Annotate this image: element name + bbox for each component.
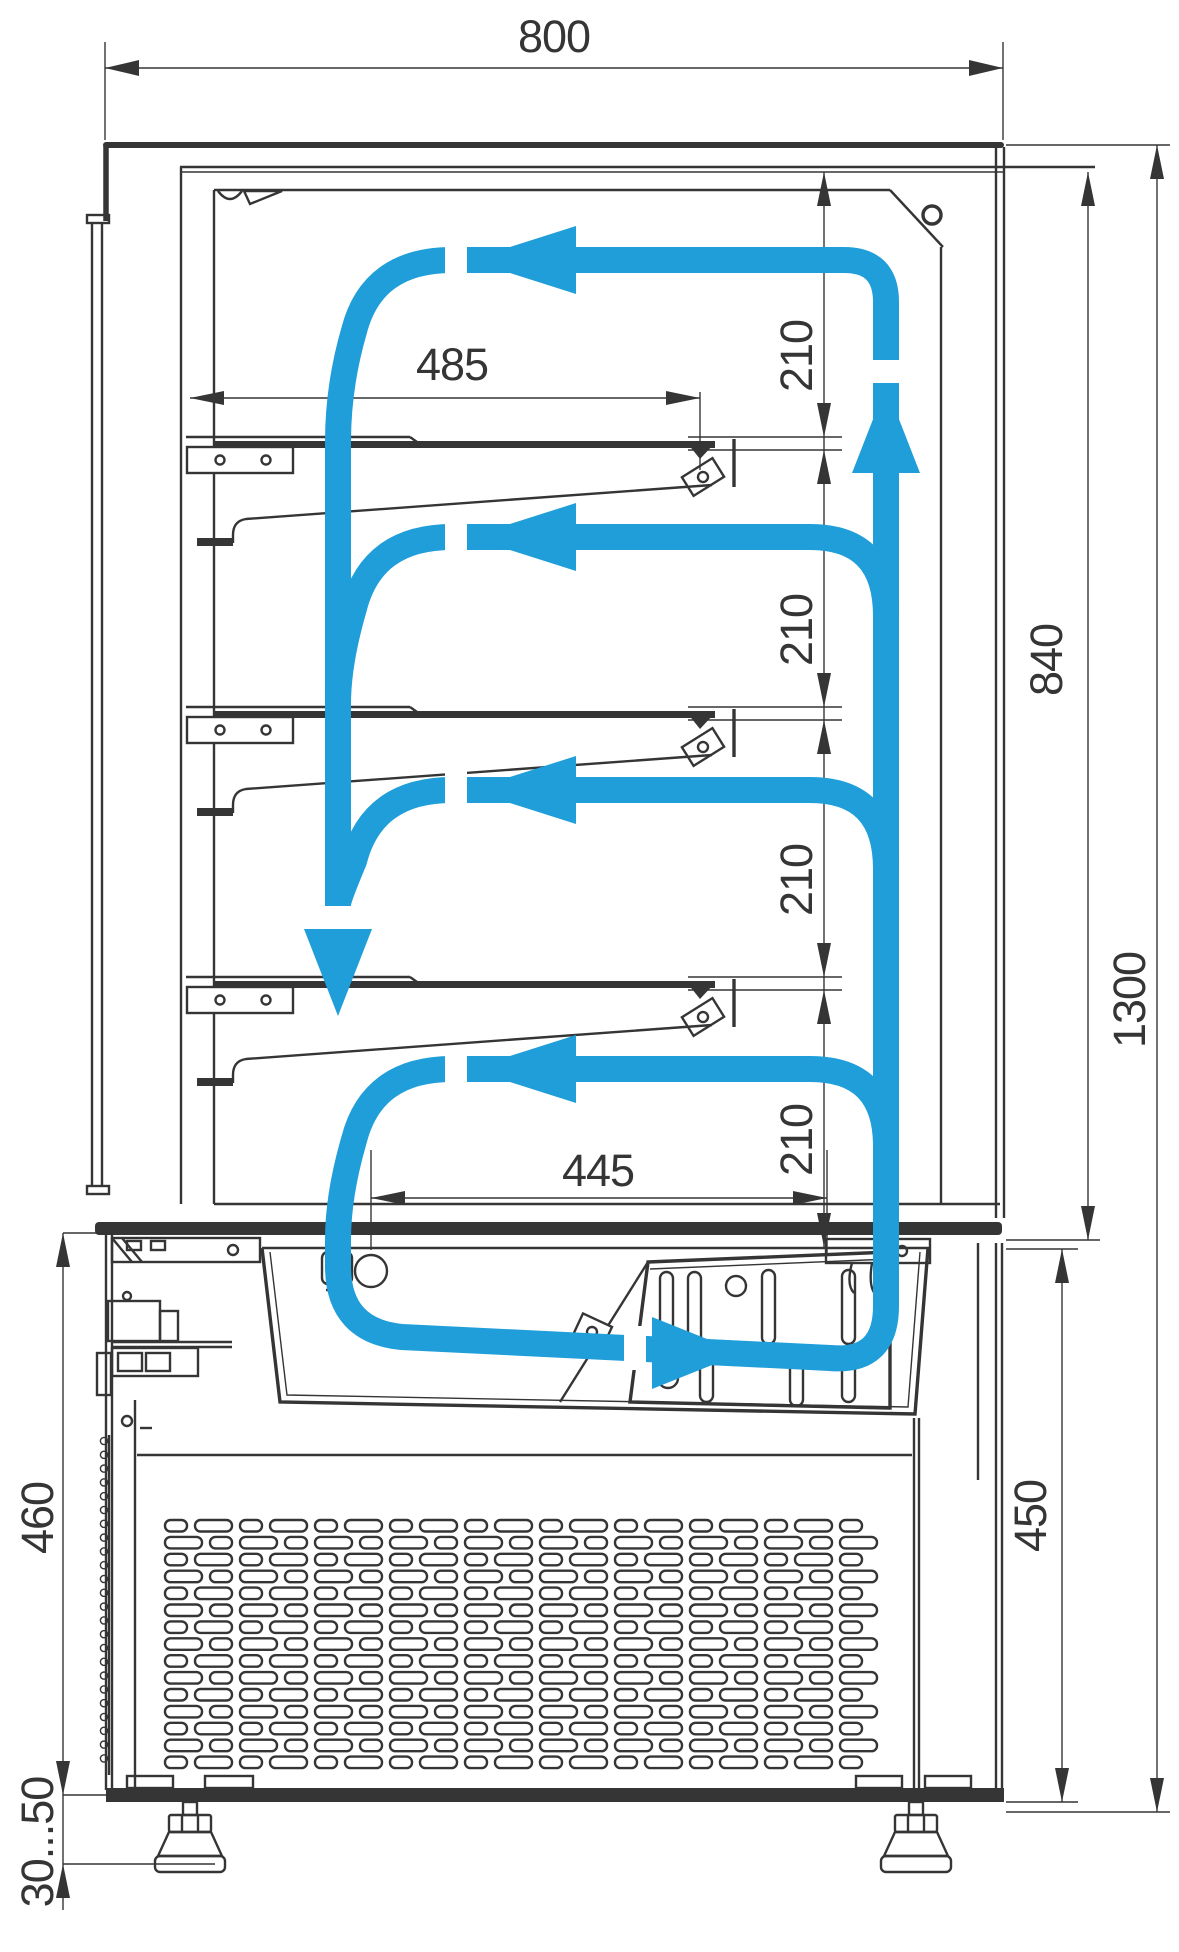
grille-slot — [540, 1740, 577, 1752]
grille-slot — [420, 1588, 457, 1600]
grille-slot — [210, 1638, 232, 1650]
grille-slot — [660, 1740, 682, 1752]
grille-slot — [720, 1655, 757, 1667]
grille-slot — [240, 1571, 277, 1583]
grille-slot — [810, 1740, 832, 1752]
grille-slot — [540, 1605, 577, 1617]
grille-slot — [420, 1621, 457, 1633]
grille-slot — [420, 1520, 457, 1532]
grille-slot — [465, 1537, 502, 1549]
grille-slot — [495, 1621, 532, 1633]
grille-slot — [360, 1571, 382, 1583]
grille-slot — [615, 1655, 637, 1667]
grille-slot — [540, 1689, 562, 1701]
grille-slot — [345, 1588, 382, 1600]
vent-grille — [165, 1520, 877, 1768]
grille-slot — [510, 1605, 532, 1617]
grille-slot — [690, 1554, 712, 1566]
grille-slot — [390, 1605, 427, 1617]
grille-slot — [390, 1520, 412, 1532]
grille-slot — [285, 1537, 307, 1549]
counter-top — [95, 1222, 1002, 1248]
grille-slot — [795, 1655, 832, 1667]
grille-slot — [840, 1605, 877, 1617]
grille-slot — [465, 1672, 502, 1684]
grille-slot — [840, 1672, 877, 1684]
grille-slot — [795, 1554, 832, 1566]
grille-slot — [465, 1638, 502, 1650]
grille-slot — [540, 1655, 562, 1667]
grille-slot — [690, 1571, 727, 1583]
grille-slot — [765, 1588, 787, 1600]
grille-slot — [510, 1706, 532, 1718]
grille-slot — [345, 1689, 382, 1701]
grille-slot — [165, 1605, 202, 1617]
grille-slot — [270, 1655, 307, 1667]
grille-slot — [720, 1520, 757, 1532]
grille-slot — [810, 1571, 832, 1583]
grille-slot — [690, 1672, 727, 1684]
grille-slot — [210, 1740, 232, 1752]
grille-slot — [165, 1655, 187, 1667]
grille-slot — [840, 1757, 862, 1769]
grille-slot — [765, 1757, 787, 1769]
label-210-4: 210 — [771, 1104, 822, 1176]
grille-slot — [810, 1605, 832, 1617]
label-210-3: 210 — [771, 844, 822, 916]
grille-slot — [195, 1689, 232, 1701]
grille-slot — [435, 1537, 457, 1549]
grille-slot — [390, 1537, 427, 1549]
grille-slot — [615, 1740, 652, 1752]
grille-slot — [510, 1571, 532, 1583]
grille-slot — [795, 1621, 832, 1633]
grille-slot — [270, 1723, 307, 1735]
display-case-diagram: 800 485 445 210 210 210 210 840 1300 450… — [0, 0, 1179, 1952]
grille-slot — [840, 1740, 877, 1752]
grille-slot — [660, 1605, 682, 1617]
grille-slot — [465, 1723, 487, 1735]
grille-slot — [165, 1520, 187, 1532]
grille-slot — [735, 1605, 757, 1617]
grille-slot — [420, 1757, 457, 1769]
label-445: 445 — [562, 1145, 634, 1196]
grille-slot — [315, 1706, 352, 1718]
grille-slot — [735, 1706, 757, 1718]
grille-slot — [615, 1706, 652, 1718]
grille-slot — [765, 1621, 787, 1633]
grille-slot — [840, 1520, 862, 1532]
grille-slot — [615, 1621, 637, 1633]
grille-slot — [315, 1605, 352, 1617]
airflow-arrow-up — [852, 386, 920, 473]
grille-slot — [420, 1554, 457, 1566]
label-1300: 1300 — [1104, 952, 1155, 1048]
grille-slot — [540, 1588, 562, 1600]
grille-slot — [615, 1638, 652, 1650]
grille-slot — [240, 1672, 277, 1684]
grille-slot — [585, 1740, 607, 1752]
grille-slot — [720, 1554, 757, 1566]
condenser-fins — [100, 1435, 109, 1775]
grille-slot — [660, 1537, 682, 1549]
grille-slot — [720, 1757, 757, 1769]
grille-slot — [270, 1588, 307, 1600]
label-210-2: 210 — [771, 594, 822, 666]
grille-slot — [465, 1605, 502, 1617]
grille-slot — [240, 1605, 277, 1617]
grille-slot — [165, 1621, 187, 1633]
grille-slot — [765, 1740, 802, 1752]
grille-slot — [765, 1706, 802, 1718]
grille-slot — [540, 1723, 562, 1735]
grille-slot — [435, 1638, 457, 1650]
grille-slot — [765, 1723, 787, 1735]
grille-slot — [720, 1621, 757, 1633]
grille-slot — [615, 1723, 637, 1735]
grille-slot — [240, 1706, 277, 1718]
label-210-1: 210 — [771, 320, 822, 392]
grille-slot — [195, 1655, 232, 1667]
grille-slot — [195, 1757, 232, 1769]
grille-slot — [690, 1740, 727, 1752]
grille-slot — [270, 1757, 307, 1769]
grille-slot — [660, 1706, 682, 1718]
grille-slot — [465, 1655, 487, 1667]
grille-slot — [345, 1723, 382, 1735]
grille-slot — [390, 1638, 427, 1650]
grille-slot — [570, 1655, 607, 1667]
grille-slot — [165, 1588, 187, 1600]
grille-slot — [345, 1554, 382, 1566]
grille-slot — [765, 1672, 802, 1684]
grille-slot — [285, 1706, 307, 1718]
grille-slot — [315, 1757, 337, 1769]
grille-slot — [465, 1621, 487, 1633]
grille-slot — [465, 1689, 487, 1701]
grille-slot — [690, 1757, 712, 1769]
grille-slot — [195, 1588, 232, 1600]
grille-slot — [660, 1672, 682, 1684]
grille-slot — [540, 1537, 577, 1549]
grille-slot — [795, 1757, 832, 1769]
grille-slot — [240, 1689, 262, 1701]
grille-slot — [645, 1723, 682, 1735]
grille-slot — [165, 1672, 202, 1684]
grille-slot — [360, 1537, 382, 1549]
grille-slot — [270, 1621, 307, 1633]
grille-slot — [615, 1672, 652, 1684]
grille-slot — [540, 1621, 562, 1633]
grille-slot — [165, 1689, 187, 1701]
grille-slot — [315, 1537, 352, 1549]
grille-slot — [495, 1520, 532, 1532]
grille-slot — [645, 1520, 682, 1532]
grille-slot — [690, 1520, 712, 1532]
grille-slot — [315, 1723, 337, 1735]
cabinet-structure — [87, 142, 1095, 1872]
grille-slot — [210, 1672, 232, 1684]
grille-slot — [360, 1740, 382, 1752]
grille-slot — [435, 1605, 457, 1617]
grille-slot — [165, 1638, 202, 1650]
grille-slot — [165, 1537, 202, 1549]
grille-slot — [240, 1655, 262, 1667]
grille-slot — [540, 1638, 577, 1650]
grille-slot — [735, 1638, 757, 1650]
grille-slot — [315, 1655, 337, 1667]
grille-slot — [840, 1655, 862, 1667]
grille-slot — [570, 1757, 607, 1769]
grille-slot — [690, 1537, 727, 1549]
grille-slot — [510, 1638, 532, 1650]
grille-slot — [195, 1723, 232, 1735]
grille-slot — [615, 1537, 652, 1549]
grille-slot — [360, 1706, 382, 1718]
grille-slot — [315, 1571, 352, 1583]
grille-slot — [465, 1554, 487, 1566]
grille-slot — [240, 1757, 262, 1769]
grille-slot — [465, 1588, 487, 1600]
corner-screw — [923, 206, 941, 224]
grille-slot — [390, 1554, 412, 1566]
grille-slot — [165, 1571, 202, 1583]
grille-slot — [285, 1571, 307, 1583]
grille-slot — [420, 1655, 457, 1667]
grille-slot — [720, 1689, 757, 1701]
grille-slot — [435, 1740, 457, 1752]
grille-slot — [465, 1571, 502, 1583]
airflow-arrow-top — [469, 226, 576, 294]
grille-slot — [540, 1672, 577, 1684]
label-840: 840 — [1021, 624, 1072, 696]
grille-slot — [390, 1588, 412, 1600]
grille-slot — [390, 1655, 412, 1667]
grille-slot — [315, 1588, 337, 1600]
grille-slot — [315, 1520, 337, 1532]
grille-slot — [615, 1757, 637, 1769]
grille-slot — [840, 1621, 862, 1633]
grille-slot — [540, 1571, 577, 1583]
grille-slot — [570, 1554, 607, 1566]
grille-slot — [390, 1706, 427, 1718]
grille-slot — [765, 1689, 787, 1701]
grille-slot — [765, 1554, 787, 1566]
grille-slot — [495, 1689, 532, 1701]
grille-slot — [240, 1537, 277, 1549]
grille-slot — [240, 1638, 277, 1650]
grille-slot — [735, 1740, 757, 1752]
grille-slot — [465, 1740, 502, 1752]
grille-slot — [690, 1706, 727, 1718]
airflow-arrow-shelf2 — [469, 756, 576, 824]
grille-slot — [495, 1655, 532, 1667]
adjustable-foot-right — [881, 1802, 951, 1872]
grille-slot — [570, 1689, 607, 1701]
grille-slot — [840, 1554, 862, 1566]
grille-slot — [540, 1554, 562, 1566]
front-glass — [87, 215, 109, 1194]
grille-slot — [795, 1689, 832, 1701]
grille-slot — [420, 1723, 457, 1735]
grille-slot — [570, 1588, 607, 1600]
grille-slot — [195, 1621, 232, 1633]
grille-slot — [345, 1757, 382, 1769]
grille-slot — [315, 1740, 352, 1752]
grille-slot — [615, 1520, 637, 1532]
grille-slot — [315, 1689, 337, 1701]
grille-slot — [690, 1605, 727, 1617]
grille-slot — [315, 1621, 337, 1633]
grille-slot — [165, 1757, 187, 1769]
grille-slot — [735, 1571, 757, 1583]
compressor-relay-box — [97, 1292, 232, 1428]
grille-slot — [840, 1537, 877, 1549]
grille-slot — [165, 1740, 202, 1752]
grille-slot — [615, 1605, 652, 1617]
counter-bracket-left — [112, 1238, 260, 1262]
grille-slot — [840, 1706, 877, 1718]
grille-slot — [210, 1706, 232, 1718]
grille-slot — [360, 1638, 382, 1650]
airflow-arrow-down — [304, 929, 372, 1016]
display-interior — [180, 167, 1095, 1204]
grille-slot — [690, 1723, 712, 1735]
grille-slot — [810, 1672, 832, 1684]
label-800: 800 — [518, 11, 590, 62]
grille-slot — [465, 1757, 487, 1769]
grille-slot — [240, 1554, 262, 1566]
grille-slot — [645, 1588, 682, 1600]
grille-slot — [840, 1723, 862, 1735]
grille-slot — [390, 1723, 412, 1735]
label-460: 460 — [12, 1482, 63, 1554]
grille-slot — [270, 1520, 307, 1532]
grille-slot — [585, 1537, 607, 1549]
grille-slot — [210, 1571, 232, 1583]
grille-slot — [495, 1757, 532, 1769]
grille-slot — [645, 1757, 682, 1769]
grille-slot — [540, 1757, 562, 1769]
grille-slot — [810, 1537, 832, 1549]
grille-slot — [840, 1571, 877, 1583]
grille-slot — [765, 1571, 802, 1583]
grille-slot — [345, 1520, 382, 1532]
grille-slot — [840, 1588, 862, 1600]
grille-slot — [690, 1655, 712, 1667]
grille-slot — [435, 1706, 457, 1718]
grille-slot — [765, 1605, 802, 1617]
grille-slot — [315, 1672, 352, 1684]
grille-slot — [645, 1554, 682, 1566]
airflow-arrow-shelf3 — [469, 1035, 576, 1103]
grille-slot — [690, 1638, 727, 1650]
grille-slot — [210, 1605, 232, 1617]
grille-slot — [795, 1723, 832, 1735]
grille-slot — [765, 1520, 787, 1532]
grille-slot — [165, 1723, 187, 1735]
grille-slot — [285, 1672, 307, 1684]
interior-lamp — [218, 191, 282, 204]
label-450: 450 — [1005, 1480, 1056, 1552]
grille-slot — [570, 1723, 607, 1735]
grille-slot — [570, 1520, 607, 1532]
grille-slot — [645, 1689, 682, 1701]
grille-slot — [585, 1706, 607, 1718]
grille-slot — [735, 1672, 757, 1684]
grille-slot — [360, 1605, 382, 1617]
grille-slot — [795, 1588, 832, 1600]
grille-slot — [690, 1689, 712, 1701]
grille-slot — [390, 1621, 412, 1633]
grille-slot — [390, 1672, 427, 1684]
grille-slot — [585, 1605, 607, 1617]
grille-slot — [615, 1571, 652, 1583]
grille-slot — [240, 1520, 262, 1532]
airflow-arrow-shelf1 — [469, 503, 576, 571]
grille-slot — [720, 1723, 757, 1735]
grille-slot — [540, 1706, 577, 1718]
grille-slot — [690, 1621, 712, 1633]
grille-slot — [615, 1588, 637, 1600]
grille-slot — [765, 1638, 802, 1650]
grille-slot — [465, 1706, 502, 1718]
grille-slot — [540, 1520, 562, 1532]
grille-slot — [165, 1554, 187, 1566]
grille-slot — [840, 1638, 877, 1650]
grille-slot — [585, 1638, 607, 1650]
grille-slot — [345, 1655, 382, 1667]
grille-slot — [810, 1638, 832, 1650]
grille-slot — [390, 1757, 412, 1769]
grille-slot — [165, 1706, 202, 1718]
grille-slot — [270, 1689, 307, 1701]
label-feet-range: 30...50 — [12, 1777, 63, 1908]
grille-slot — [285, 1740, 307, 1752]
grille-slot — [645, 1621, 682, 1633]
grille-slot — [195, 1554, 232, 1566]
grille-slot — [720, 1588, 757, 1600]
grille-slot — [240, 1723, 262, 1735]
grille-slot — [360, 1672, 382, 1684]
grille-slot — [315, 1554, 337, 1566]
grille-slot — [810, 1706, 832, 1718]
grille-slot — [240, 1588, 262, 1600]
grille-slot — [735, 1537, 757, 1549]
grille-slot — [390, 1571, 427, 1583]
grille-slot — [390, 1740, 427, 1752]
grille-slot — [795, 1520, 832, 1532]
grille-slot — [315, 1638, 352, 1650]
grille-slot — [585, 1672, 607, 1684]
grille-slot — [345, 1621, 382, 1633]
grille-slot — [645, 1655, 682, 1667]
grille-slot — [285, 1638, 307, 1650]
grille-slot — [240, 1740, 277, 1752]
grille-slot — [615, 1689, 637, 1701]
grille-slot — [495, 1554, 532, 1566]
grille-slot — [765, 1655, 787, 1667]
grille-slot — [840, 1689, 862, 1701]
grille-slot — [495, 1723, 532, 1735]
grille-slot — [660, 1638, 682, 1650]
grille-slot — [690, 1588, 712, 1600]
grille-slot — [510, 1672, 532, 1684]
grille-slot — [495, 1588, 532, 1600]
grille-slot — [765, 1537, 802, 1549]
grille-slot — [420, 1689, 457, 1701]
grille-slot — [510, 1740, 532, 1752]
